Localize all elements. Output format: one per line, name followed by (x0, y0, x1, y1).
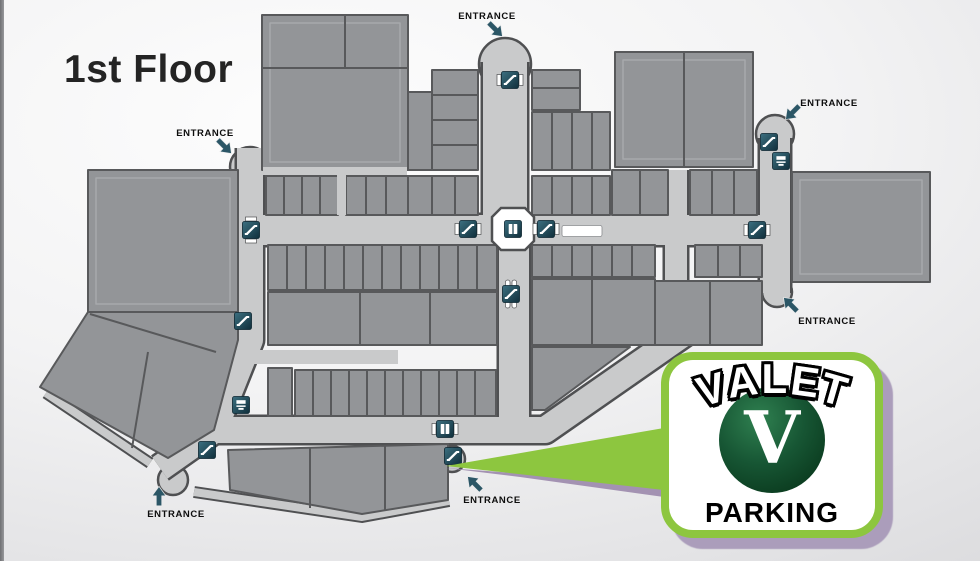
elevator-icon (505, 221, 522, 238)
atm-icon (233, 397, 250, 414)
store-block (408, 176, 478, 215)
entrance-label: ENTRANCE (800, 98, 858, 109)
entrance-label: ENTRANCE (463, 495, 521, 506)
store-block (532, 245, 655, 277)
entrance-label: ENTRANCE (176, 128, 234, 139)
valet-title-letter: L (762, 358, 788, 400)
anchor-store (88, 170, 238, 312)
escalator-icon (445, 448, 462, 465)
mall-directory-page: 1st Floor (0, 0, 980, 561)
escalator-icon (761, 134, 778, 151)
escalator-icon (199, 442, 216, 459)
atm-icon (773, 153, 790, 170)
store-block (532, 279, 655, 345)
entrance-label: ENTRANCE (147, 509, 205, 520)
store-block (695, 245, 762, 277)
valet-title: VALET (693, 361, 851, 403)
kiosk-marker (562, 226, 602, 237)
store-block (655, 281, 762, 345)
valet-badge-letter: V (744, 402, 800, 474)
entrance-arrow-icon (464, 473, 486, 495)
parking-label: PARKING (705, 497, 839, 529)
anchor-store (262, 15, 408, 170)
store-block (532, 70, 580, 110)
store-block (268, 292, 497, 345)
store-block (346, 176, 408, 215)
store-block (295, 370, 496, 416)
store-block (690, 170, 757, 215)
valet-title-letter: A (724, 359, 760, 405)
valet-title-letter: T (816, 366, 852, 413)
valet-parking-callout: VALET V PARKING (661, 352, 883, 538)
anchor-store (792, 172, 930, 282)
escalator-icon (235, 313, 252, 330)
store-block (268, 368, 292, 416)
entrance-label: ENTRANCE (458, 11, 516, 22)
entrance-label: ENTRANCE (798, 316, 856, 327)
store-block (408, 92, 432, 170)
